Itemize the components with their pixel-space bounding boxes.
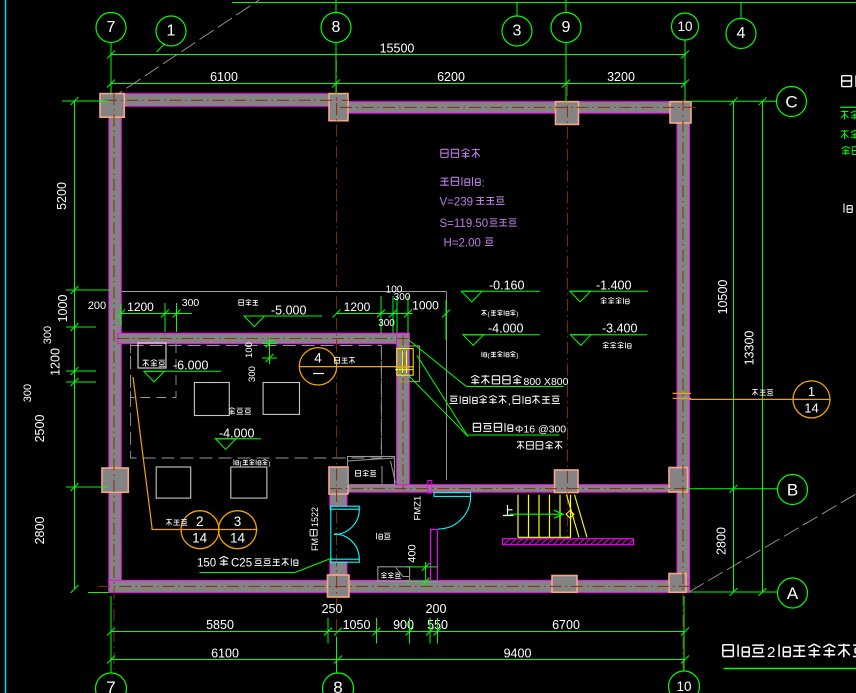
svg-text:400: 400	[407, 544, 419, 562]
svg-text:,: ,	[508, 397, 511, 408]
svg-text:300: 300	[247, 366, 258, 382]
svg-text:4: 4	[314, 351, 322, 366]
svg-text:300: 300	[22, 384, 34, 402]
svg-text:2: 2	[767, 644, 775, 661]
svg-text:8: 8	[332, 19, 341, 36]
svg-text:-5.000: -5.000	[271, 304, 306, 318]
svg-text:H=2.00: H=2.00	[444, 238, 481, 250]
svg-text:4: 4	[737, 25, 746, 42]
svg-text:200: 200	[88, 300, 106, 312]
svg-text:3: 3	[234, 514, 242, 529]
svg-text:7: 7	[106, 678, 115, 693]
svg-text:200: 200	[426, 602, 447, 616]
svg-text:2500: 2500	[33, 415, 47, 443]
svg-text:-4.000: -4.000	[488, 322, 523, 336]
svg-text:300: 300	[378, 318, 395, 329]
svg-text:10: 10	[676, 679, 691, 693]
svg-text:1050: 1050	[343, 618, 371, 632]
svg-text:10: 10	[677, 19, 692, 34]
svg-text:1522: 1522	[310, 507, 320, 527]
svg-text:300: 300	[394, 292, 411, 303]
svg-text:14: 14	[804, 401, 818, 416]
svg-text:7: 7	[107, 19, 116, 36]
svg-text:10500: 10500	[716, 280, 730, 315]
svg-text:300: 300	[182, 297, 200, 309]
svg-text:-1.400: -1.400	[596, 279, 631, 293]
svg-text:C25: C25	[231, 558, 252, 570]
svg-text:250: 250	[322, 602, 343, 616]
svg-text:6100: 6100	[211, 647, 239, 661]
svg-text:2800: 2800	[33, 517, 47, 545]
svg-text:B: B	[787, 481, 798, 500]
svg-text:1200: 1200	[49, 348, 63, 376]
svg-text:1200: 1200	[127, 300, 154, 314]
svg-text:2800: 2800	[715, 527, 729, 555]
svg-text:): )	[516, 311, 518, 318]
svg-text:900: 900	[393, 618, 414, 632]
svg-text:14: 14	[192, 531, 208, 546]
svg-text:6700: 6700	[552, 618, 580, 632]
svg-text:1: 1	[808, 384, 815, 399]
svg-text:2: 2	[196, 514, 204, 529]
svg-text:3200: 3200	[607, 70, 635, 84]
svg-text:6100: 6100	[210, 70, 238, 84]
svg-text:300: 300	[42, 326, 54, 344]
svg-text:9: 9	[562, 19, 571, 36]
svg-text:): )	[268, 461, 270, 468]
svg-text:-0.160: -0.160	[489, 279, 524, 293]
svg-text:5200: 5200	[55, 182, 69, 210]
svg-text:6200: 6200	[437, 70, 465, 84]
svg-text:FMZ1: FMZ1	[413, 496, 424, 521]
svg-text:C: C	[785, 93, 797, 112]
svg-text:9400: 9400	[504, 647, 532, 661]
svg-text:FM: FM	[310, 538, 320, 551]
svg-text:1: 1	[167, 23, 176, 40]
svg-text:15500: 15500	[380, 42, 415, 56]
svg-text:-6.000: -6.000	[173, 359, 208, 373]
svg-text:150: 150	[197, 558, 216, 570]
svg-text:A: A	[787, 584, 799, 603]
svg-text:1000: 1000	[56, 295, 70, 323]
svg-text:V=239: V=239	[440, 197, 474, 209]
svg-text:100: 100	[244, 342, 255, 358]
svg-text::: :	[482, 178, 485, 190]
svg-text:1000: 1000	[412, 299, 439, 313]
svg-text:13300: 13300	[743, 331, 757, 366]
svg-text:S=119.50: S=119.50	[440, 218, 489, 230]
svg-text:14: 14	[230, 531, 246, 546]
svg-text:8: 8	[333, 678, 342, 693]
svg-text:1200: 1200	[344, 300, 371, 314]
svg-text:Φ16 @300: Φ16 @300	[515, 424, 566, 436]
svg-text:3: 3	[513, 23, 522, 40]
svg-text:5850: 5850	[206, 618, 234, 632]
svg-text:): )	[516, 353, 518, 360]
svg-text:-3.400: -3.400	[602, 322, 637, 336]
